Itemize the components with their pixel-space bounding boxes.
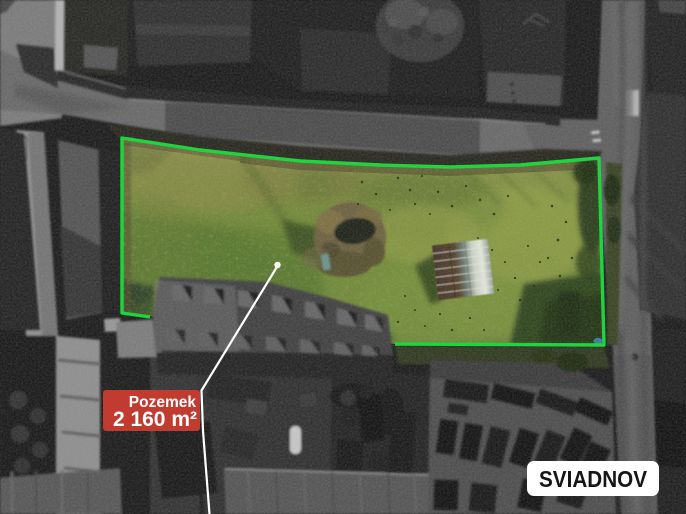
- svg-text:2 160 m²: 2 160 m²: [113, 408, 197, 431]
- svg-text:SVIADNOV: SVIADNOV: [539, 466, 648, 492]
